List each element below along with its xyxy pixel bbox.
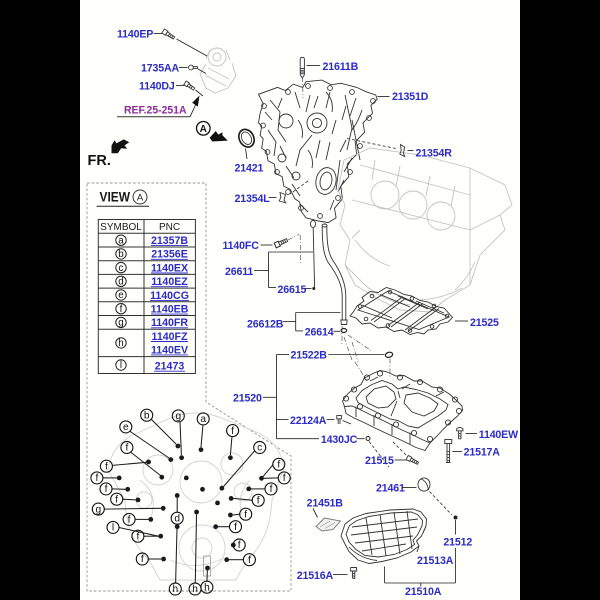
svg-text:f: f (283, 473, 286, 484)
svg-text:1140EP: 1140EP (117, 29, 153, 41)
svg-text:REF.25-251A: REF.25-251A (124, 105, 187, 117)
svg-text:22124A: 22124A (290, 415, 327, 427)
svg-text:A: A (200, 124, 207, 135)
svg-text:21611B: 21611B (323, 61, 359, 73)
svg-text:21520: 21520 (233, 393, 262, 405)
svg-text:PNC: PNC (159, 222, 180, 233)
svg-text:21354R: 21354R (416, 148, 453, 160)
svg-text:f: f (115, 494, 118, 505)
svg-text:21513A: 21513A (417, 555, 454, 567)
svg-text:h: h (118, 338, 123, 349)
svg-text:26611: 26611 (225, 266, 253, 278)
svg-text:f: f (277, 460, 280, 471)
svg-text:f: f (128, 515, 131, 526)
svg-text:h: h (192, 584, 198, 595)
svg-text:21461: 21461 (376, 483, 405, 495)
svg-text:26615: 26615 (278, 284, 307, 296)
svg-text:21512: 21512 (443, 537, 472, 549)
svg-text:g: g (95, 504, 101, 515)
svg-text:f: f (95, 473, 98, 484)
svg-text:21451B: 21451B (307, 498, 344, 510)
svg-text:e: e (123, 422, 129, 433)
svg-text:f: f (231, 426, 234, 437)
svg-text:g: g (175, 411, 181, 422)
svg-text:1140EW: 1140EW (479, 429, 518, 441)
svg-text:h: h (204, 582, 210, 593)
svg-text:b: b (144, 411, 150, 422)
svg-text:d: d (118, 277, 123, 288)
svg-text:A: A (137, 192, 144, 203)
svg-text:f: f (125, 443, 128, 454)
svg-text:FR.: FR. (88, 153, 111, 169)
svg-text:21522B: 21522B (291, 350, 328, 362)
svg-text:21354L: 21354L (235, 193, 271, 205)
svg-text:f: f (244, 509, 247, 520)
svg-text:e: e (118, 290, 124, 301)
svg-text:f: f (141, 554, 144, 565)
svg-text:f: f (248, 555, 251, 566)
svg-text:f: f (257, 496, 260, 507)
svg-text:21525: 21525 (470, 317, 499, 329)
svg-text:f: f (238, 540, 241, 551)
svg-text:f: f (270, 484, 273, 495)
svg-text:1140FC: 1140FC (223, 240, 260, 252)
svg-text:l: l (112, 523, 114, 534)
svg-text:l: l (120, 360, 122, 371)
svg-text:21515: 21515 (365, 455, 394, 467)
svg-text:21510A: 21510A (405, 586, 442, 598)
svg-text:1430JC: 1430JC (321, 434, 358, 446)
svg-text:g: g (118, 318, 123, 329)
svg-text:21517A: 21517A (464, 447, 501, 459)
svg-text:b: b (118, 249, 124, 260)
svg-text:a: a (200, 414, 206, 425)
svg-text:f: f (136, 531, 139, 542)
svg-text:d: d (174, 513, 180, 524)
svg-text:h: h (172, 584, 178, 595)
svg-text:1735AA: 1735AA (141, 63, 179, 75)
svg-text:f: f (105, 461, 108, 472)
svg-text:26612B: 26612B (247, 319, 284, 331)
svg-text:c: c (257, 443, 262, 454)
svg-text:c: c (119, 263, 124, 274)
svg-text:f: f (234, 522, 237, 533)
svg-text:f: f (120, 304, 123, 315)
svg-text:SYMBOL: SYMBOL (100, 222, 142, 233)
svg-text:21421: 21421 (235, 163, 264, 175)
svg-text:21351D: 21351D (392, 91, 429, 103)
svg-text:VIEW: VIEW (100, 190, 131, 205)
svg-text:26614: 26614 (305, 327, 334, 339)
svg-text:f: f (105, 484, 108, 495)
svg-text:1140DJ: 1140DJ (139, 81, 175, 93)
svg-text:a: a (118, 235, 124, 246)
svg-text:21516A: 21516A (297, 570, 334, 582)
